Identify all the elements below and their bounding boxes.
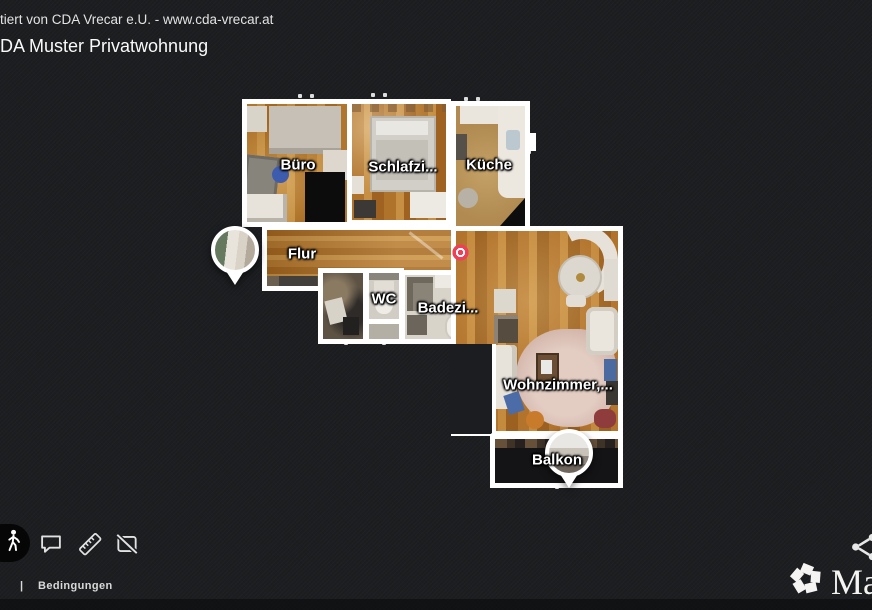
flur-pin-photo [211,226,259,274]
bath-dark-spot [407,315,427,335]
walk-person-icon [0,528,26,556]
wall-handle-mark [618,433,622,437]
walk-mode-button[interactable] [0,524,30,562]
wall-handle-mark [619,289,623,293]
wall-handle-mark [383,93,387,97]
room-label-flur[interactable]: Flur [288,246,316,263]
room-label-wc[interactable]: WC [372,291,397,308]
kitchen-appliance [454,134,467,160]
floorplan-notch [449,344,496,434]
matterport-wordmark: Ma [831,561,872,603]
presented-by-text: tiert von CDA Vrecar e.U. - www.cda-vrec… [0,12,273,27]
furniture-desk-white [410,192,446,218]
room-storage[interactable] [318,268,368,344]
furniture-chair [350,176,364,194]
furniture-bed [370,116,436,192]
bed-pillows [376,121,428,135]
wall-handle-mark [449,158,453,162]
room-label-buero[interactable]: Büro [281,157,316,174]
kitchen-sink [506,130,520,150]
furniture-dining-bench [604,259,618,301]
current-position-target [452,244,469,261]
measure-button[interactable] [77,531,103,557]
furniture-dining-chair [566,295,586,307]
wall-handle-mark [262,248,266,252]
terms-separator: | [20,580,23,592]
coffee-table-item [541,360,552,374]
wall-handle-mark [298,94,302,98]
wall-handle-mark [619,344,623,348]
kitchen-chair [458,188,478,208]
bottom-strip [0,599,872,610]
room-label-schlafzimmer[interactable]: Schlafzi... [368,159,437,176]
wall-handle-mark [382,341,386,345]
room-label-balkon[interactable]: Balkon [532,452,582,469]
curtain-strip [352,104,446,112]
floor-light-streak [409,231,444,259]
wall-handle-mark [310,94,314,98]
wall-handle-mark [527,150,531,154]
furniture-dark-item [354,200,376,218]
table-center-knob [576,273,585,282]
matterport-pinwheel-icon [787,560,825,598]
room-label-kueche[interactable]: Küche [466,157,512,174]
wall-handle-mark [464,97,468,101]
furniture-shelf [247,106,267,132]
balkon-pin-tail [560,474,578,488]
pano-views-off-button[interactable] [114,531,140,557]
furniture-sideboard-white [494,289,516,313]
room-label-wohnzimmer[interactable]: Wohnzimmer,... [503,377,613,394]
wc-cistern [374,281,394,291]
wall-handle-mark [371,93,375,97]
flur-photo-pin[interactable] [211,226,259,285]
kitchen-counter-right [498,106,525,198]
furniture-orange-stool [526,411,544,429]
furniture-red-chair [594,409,616,428]
storage-item-dark [343,317,359,335]
furniture-wardrobe [269,106,341,154]
wall-handle-mark [491,433,495,437]
room-label-badezimmer[interactable]: Badezi... [418,300,479,317]
wall-handle-mark [347,158,351,162]
furniture-cabinet [247,194,287,222]
share-icon [849,531,872,563]
wc-lower-area [369,324,399,339]
flur-pin-tail [226,271,244,285]
pano-off-icon [114,531,140,557]
comments-button[interactable] [38,531,64,557]
viewer-stage[interactable]: tiert von CDA Vrecar e.U. - www.cda-vrec… [0,0,872,610]
wall-handle-mark [344,341,348,345]
comment-bubble-icon [38,531,64,557]
unscanned-corner [500,198,525,226]
ruler-icon [77,531,103,557]
wall-handle-mark [476,97,480,101]
share-button[interactable] [849,531,872,563]
wc-top-shadow [369,273,399,280]
tour-title: DA Muster Privatwohnung [0,36,208,57]
terms-link[interactable]: Bedingungen [38,580,113,592]
furniture-armchair [586,307,618,355]
furniture-dining-table [558,255,602,299]
unscanned-area [305,172,345,224]
matterport-logo[interactable] [787,560,825,598]
wall-radiator-nub [528,133,536,151]
furniture-tv-board [494,315,518,343]
